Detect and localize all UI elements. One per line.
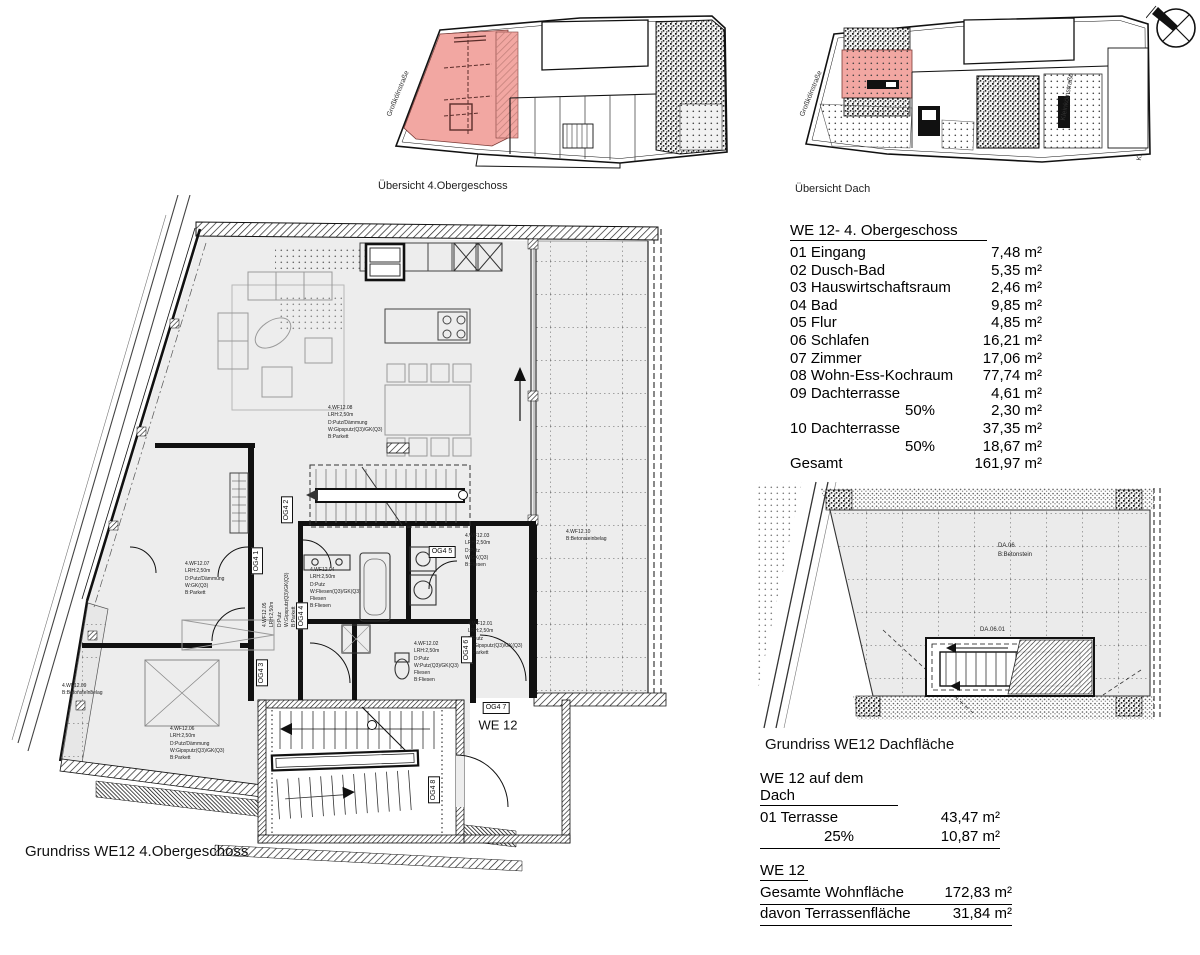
overview-og-caption: Übersicht 4.Obergeschoss [378,180,508,192]
table-row: 50%2,30 m² [790,402,1042,420]
annotation-duschbad: 4.WF12.02 LRH:2,50m D:Putz W:Putz(Q3)/GK… [414,641,459,685]
table-row: 05 Flur4,85 m² [790,314,1042,332]
table-row: 02 Dusch-Bad5,35 m² [790,262,1042,280]
common-stairwell [258,700,570,843]
schedule-title: WE 12- 4. Obergeschoss [790,222,987,241]
roof-table: WE 12 auf dem Dach 01 Terrasse43,47 m² 2… [760,770,1000,849]
table-row: 50%18,67 m² [790,438,1042,456]
main-plan-caption: Grundriss WE12 4.Obergeschoss [25,843,248,860]
table-row: 08 Wohn-Ess-Kochraum77,74 m² [790,367,1042,385]
floorplan-sheet: Großkölnstraße Kleinkölnstraße Übersicht… [0,0,1200,955]
roof-area-label: DA.06 B:Betonstein [998,542,1032,559]
flue [387,443,409,453]
room-tag-og4-7: OG4 7 [483,702,510,714]
room-tag-og4-5: OG4 5 [429,546,456,558]
totals-table: WE 12 Gesamte Wohnfläche172,83 m² davon … [760,862,1012,926]
roof-plan-caption: Grundriss WE12 Dachfläche [765,736,954,753]
annotation-eingang: 4.WF12.01 LRH:2,50m D:Putz W:Gipsputz(Q3… [468,621,522,657]
room-tag-og4-1: OG4 1 [251,548,263,575]
lower-hatch-strip [215,845,522,871]
room-tag-og4-6: OG4 6 [461,637,473,664]
room-schedule: WE 12- 4. Obergeschoss 01 Eingang7,48 m²… [790,222,1042,473]
table-row: Gesamte Wohnfläche172,83 m² [760,884,1012,905]
table-row-total: Gesamt161,97 m² [790,455,1042,473]
roof-stair-label: DA.06.01 [980,626,1005,635]
annotation-hwr: 4.WF12.03 LRH:2,50m D:Putz W:GK(Q3) B:Fl… [465,533,490,569]
overview-dach-caption: Übersicht Dach [795,183,870,195]
annotation-living: 4.WF12.08 LRH:2,50m D:Putz/Dämmung W:Gip… [328,405,382,441]
table-row: 07 Zimmer17,06 m² [790,350,1042,368]
table-row: 03 Hauswirtschaftsraum2,46 m² [790,279,1042,297]
annotation-terrasse09: 4.WF12.09 B:Betonsteinbelag [62,683,103,698]
table-row: 09 Dachterrasse4,61 m² [790,385,1042,403]
terrace-10 [534,229,666,706]
annotation-bad: 4.WF12.04 LRH:2,50m D:Putz W:Fliesen(Q3)… [310,567,361,611]
table-row: 01 Terrasse43,47 m² [760,809,1000,828]
roof-table-title: WE 12 auf dem Dach [760,770,898,806]
north-arrow-icon [1146,0,1200,54]
street-lines [758,482,836,728]
overview-dach-plan [792,8,1162,173]
table-row: 25%10,87 m² [760,828,1000,847]
unit-label: WE 12 [478,718,517,733]
table-row: 06 Schlafen16,21 m² [790,332,1042,350]
annotation-flur: 4.WF12.05 LRH:2,50m D:Putz W:Gipsputz(Q3… [262,573,298,627]
roof-plan: DA.06 B:Betonstein DA.06.01 [758,480,1162,732]
room-tag-og4-8: OG4 8 [428,777,440,804]
room-tag-og4-3: OG4 3 [256,660,268,687]
annotation-terrasse10: 4.WF12.10 B:Betonsteinbelag [566,529,607,544]
room-tag-og4-2: OG4 2 [281,497,293,524]
room-tag-og4-4: OG4 4 [296,603,308,630]
annotation-zimmer: 4.WF12.07 LRH:2,50m D:Putz/Dämmung W:GK(… [185,561,224,597]
table-row: 01 Eingang7,48 m² [790,244,1042,262]
annotation-schlafen: 4.WF12.06 LRH:2,50m D:Putz/Dämmung W:Gip… [170,726,224,762]
totals-title: WE 12 [760,862,808,881]
overview-og-plan [380,8,742,178]
table-row: 04 Bad9,85 m² [790,297,1042,315]
roof-plan-drawing [758,480,1162,732]
table-row: davon Terrassenfläche31,84 m² [760,905,1012,926]
roof-stair-structure [926,638,1094,696]
main-plan: 4.WF12.08 LRH:2,50m D:Putz/Dämmung W:Gip… [10,195,688,885]
table-row: 10 Dachterrasse37,35 m² [790,420,1042,438]
